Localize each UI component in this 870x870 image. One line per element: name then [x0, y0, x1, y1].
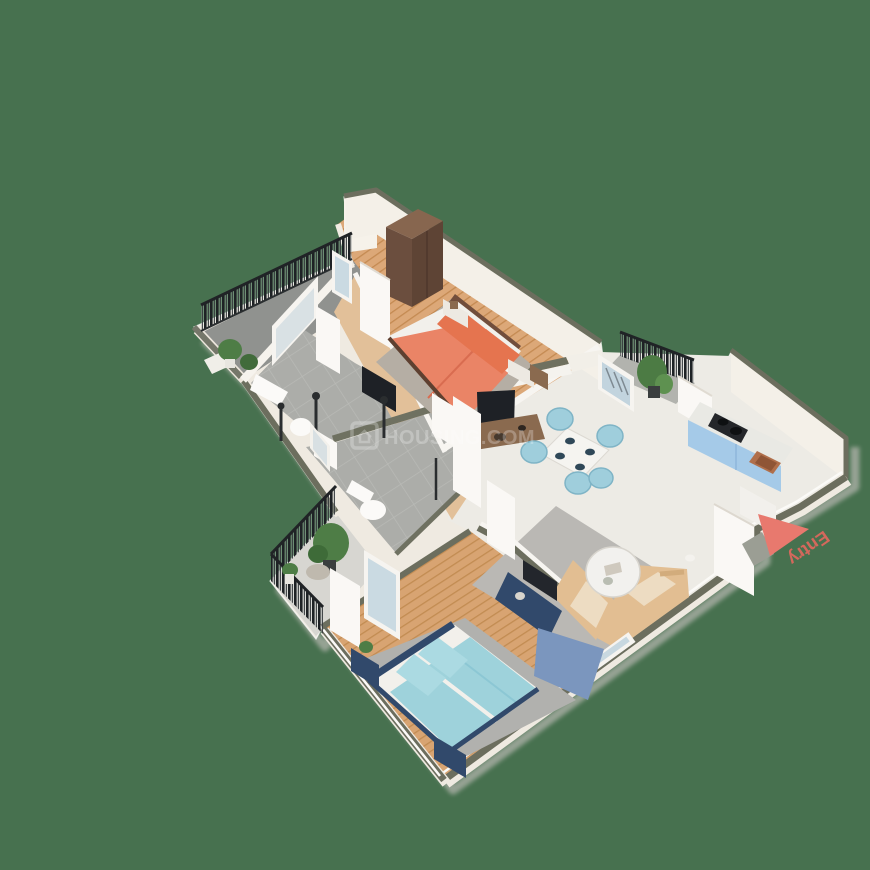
svg-text:HOUSING.COM: HOUSING.COM — [384, 427, 535, 449]
